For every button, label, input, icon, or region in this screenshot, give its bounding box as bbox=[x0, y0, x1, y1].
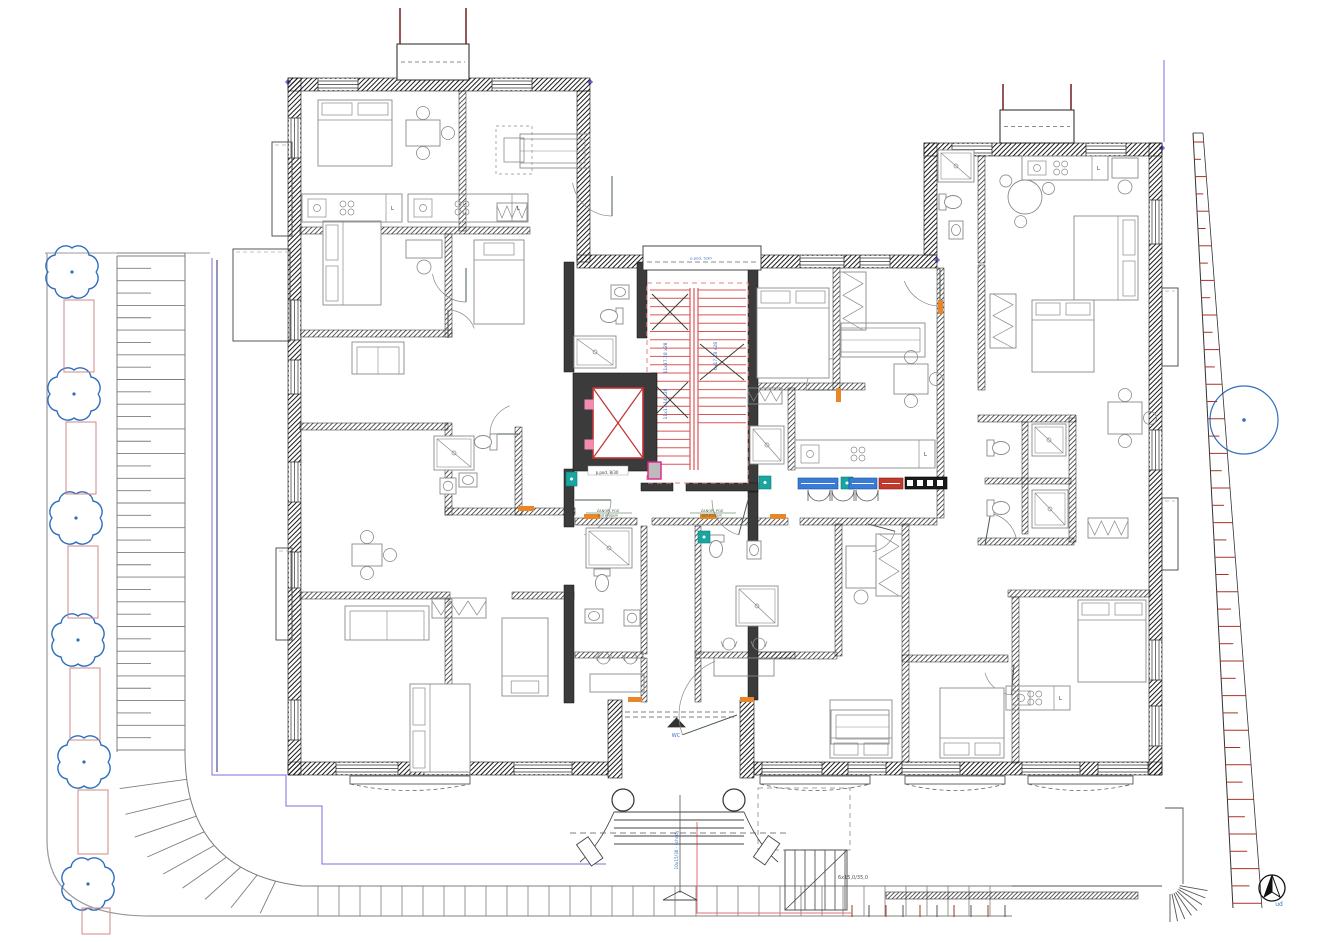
interior-wall bbox=[978, 265, 985, 390]
interior-wall bbox=[902, 655, 1008, 662]
desk bbox=[1112, 158, 1138, 194]
sofa bbox=[352, 342, 404, 374]
label-stair-run-1: 11x17.18 x28 bbox=[663, 342, 669, 373]
interior-wall bbox=[835, 524, 842, 656]
interior-wall bbox=[300, 423, 448, 430]
toilet bbox=[708, 535, 724, 558]
window bbox=[1086, 143, 1126, 156]
column bbox=[612, 789, 634, 811]
interior-wall bbox=[300, 592, 450, 599]
sofa bbox=[345, 606, 429, 640]
parking-strip-south bbox=[302, 886, 1012, 917]
window bbox=[1149, 200, 1162, 244]
wardrobe bbox=[876, 534, 902, 596]
planter bbox=[70, 668, 100, 740]
bed bbox=[323, 221, 381, 305]
dining-table bbox=[406, 107, 455, 160]
interior-wall bbox=[978, 415, 1076, 422]
appliance-tag-black bbox=[905, 477, 947, 489]
parking-curve bbox=[120, 752, 302, 913]
interior-wall bbox=[833, 268, 840, 390]
kitchen-counter: L bbox=[1022, 156, 1108, 180]
interior-wall bbox=[978, 538, 1074, 545]
threshold-marker bbox=[518, 506, 534, 511]
window bbox=[762, 762, 822, 775]
north-arrow bbox=[1259, 875, 1285, 901]
parking-strip-west bbox=[117, 253, 185, 752]
sink bbox=[949, 221, 963, 239]
stair-flight-right bbox=[698, 290, 746, 423]
tree bbox=[48, 368, 100, 420]
planter bbox=[66, 422, 96, 494]
shower bbox=[736, 586, 778, 626]
window bbox=[1149, 706, 1162, 746]
window bbox=[288, 118, 301, 158]
shower bbox=[1032, 490, 1068, 528]
window bbox=[318, 78, 358, 91]
exterior-wall bbox=[924, 143, 937, 255]
window bbox=[288, 700, 301, 740]
window bbox=[1022, 762, 1080, 775]
door-swing bbox=[868, 524, 895, 552]
threshold-marker bbox=[836, 388, 841, 402]
svg-text:L: L bbox=[391, 206, 394, 212]
shower bbox=[750, 426, 784, 464]
slope-hatch bbox=[1193, 133, 1262, 908]
core-wall bbox=[641, 483, 673, 491]
interior-wall bbox=[978, 155, 985, 263]
threshold-marker bbox=[770, 514, 786, 519]
window bbox=[288, 360, 301, 394]
interior-wall bbox=[788, 388, 795, 470]
kitchen-counter: L bbox=[408, 194, 528, 222]
french-window bbox=[1028, 776, 1133, 791]
desk bbox=[846, 546, 876, 604]
balcony bbox=[233, 249, 290, 341]
toilet bbox=[475, 434, 498, 450]
appliance-tag-red bbox=[879, 478, 903, 489]
label-landing-note: p.pod. 5/30 bbox=[690, 256, 712, 261]
tree-large bbox=[1210, 386, 1278, 454]
balcony bbox=[1162, 288, 1178, 366]
interior-wall bbox=[575, 518, 637, 525]
core-wall bbox=[564, 262, 574, 372]
interior-wall bbox=[300, 330, 452, 337]
core-wall bbox=[564, 585, 574, 703]
interior-wall bbox=[695, 526, 701, 654]
tree bbox=[50, 492, 102, 544]
desk bbox=[406, 240, 442, 274]
stair-core bbox=[573, 283, 748, 483]
toilet bbox=[594, 569, 610, 592]
threshold-marker bbox=[938, 300, 943, 314]
bed bbox=[830, 700, 892, 758]
tree bbox=[62, 858, 114, 910]
wardrobe bbox=[1088, 518, 1128, 538]
roof-landing bbox=[1000, 84, 1074, 143]
sink bbox=[585, 609, 603, 623]
appliance-tag bbox=[849, 478, 877, 489]
sofa bbox=[831, 710, 889, 744]
bed bbox=[502, 618, 548, 696]
interior-wall bbox=[985, 478, 1071, 484]
interior-wall bbox=[902, 524, 909, 764]
window bbox=[1149, 430, 1162, 470]
sink bbox=[611, 285, 629, 299]
bed bbox=[410, 684, 470, 772]
planter bbox=[64, 300, 94, 372]
balcony bbox=[1162, 498, 1178, 570]
label-note-left-1: ZANOŘ. POZ bbox=[597, 508, 620, 513]
label-entrance-wc: WC bbox=[672, 733, 681, 739]
interior-wall bbox=[1008, 590, 1150, 597]
label-stair-br: 6x15,0/35,0 bbox=[838, 875, 868, 881]
label-note-right-1: ZANOŘ. POZ bbox=[701, 508, 724, 513]
shower bbox=[434, 436, 474, 470]
window bbox=[514, 762, 572, 775]
window bbox=[800, 255, 844, 268]
bed bbox=[1074, 216, 1138, 300]
window bbox=[492, 78, 532, 91]
label-note-right-2: pod stropem bbox=[702, 514, 722, 518]
tree bbox=[46, 246, 98, 298]
closet-door bbox=[832, 490, 854, 501]
planter bbox=[68, 546, 98, 618]
column bbox=[723, 789, 745, 811]
wardrobe bbox=[840, 272, 866, 330]
core-wall bbox=[686, 483, 758, 491]
sofa bbox=[841, 323, 925, 357]
tree bbox=[52, 614, 104, 666]
furniture-layer: LLLLL bbox=[302, 100, 1157, 772]
label-note-left-2: pod stropem bbox=[598, 514, 618, 518]
interior-wall bbox=[652, 518, 788, 525]
round-table bbox=[1000, 175, 1055, 228]
label-stair-run-3: 11x17.14 x28 bbox=[663, 388, 669, 419]
interior-wall bbox=[641, 526, 647, 654]
closet-door bbox=[808, 490, 830, 501]
floor-plan-svg: LLLLL11x17.18 x286x17.18 x2811x17.14 x28… bbox=[0, 0, 1338, 942]
french-window bbox=[350, 776, 470, 791]
dining-table bbox=[894, 351, 943, 408]
exterior-wall bbox=[288, 78, 301, 775]
shower bbox=[1032, 424, 1066, 456]
bed bbox=[1032, 300, 1094, 372]
vestibule-door bbox=[679, 661, 737, 735]
threshold-marker bbox=[740, 697, 754, 702]
door-swing bbox=[904, 268, 940, 306]
wardrobe bbox=[432, 598, 486, 618]
svg-text:L: L bbox=[517, 206, 520, 212]
toilet bbox=[987, 500, 1010, 516]
room-tag bbox=[566, 472, 577, 486]
interior-wall bbox=[695, 658, 701, 702]
french-window bbox=[905, 776, 1005, 791]
shower bbox=[586, 528, 632, 568]
window bbox=[1098, 762, 1148, 775]
label-stair-run-2: 6x17.18 x28 bbox=[713, 342, 719, 370]
room-tag bbox=[698, 531, 710, 543]
washer bbox=[624, 610, 640, 626]
exterior-wall bbox=[608, 700, 622, 778]
kitchen-counter: L bbox=[302, 194, 402, 222]
appliance-tag bbox=[798, 478, 838, 489]
site-corner-right bbox=[1012, 808, 1207, 922]
closet-door bbox=[856, 490, 878, 501]
washer bbox=[440, 478, 456, 494]
bed bbox=[940, 688, 1004, 758]
label-elevator-note: p.pod. 8/30 bbox=[596, 470, 619, 475]
kitchen-counter: L bbox=[795, 440, 935, 468]
walkway-strip bbox=[886, 892, 1138, 899]
bed bbox=[474, 240, 524, 324]
sink bbox=[459, 473, 477, 487]
toilet bbox=[601, 308, 624, 324]
svg-text:L: L bbox=[1097, 166, 1100, 172]
window bbox=[902, 762, 960, 775]
label-north-arrow-label: ud bbox=[1275, 901, 1283, 908]
site-layer bbox=[45, 60, 1278, 934]
shower bbox=[938, 150, 974, 182]
exterior-wall bbox=[740, 700, 754, 778]
elevator bbox=[573, 373, 661, 479]
entrance-marker bbox=[668, 718, 685, 727]
threshold-marker bbox=[628, 697, 642, 702]
tree bbox=[58, 736, 110, 788]
svg-text:L: L bbox=[924, 452, 927, 458]
toilet bbox=[939, 194, 962, 210]
bed bbox=[1078, 600, 1146, 682]
wardrobe bbox=[990, 294, 1016, 348]
roof-landing bbox=[397, 8, 469, 80]
window bbox=[860, 255, 890, 268]
label-exterior-stair: 10x15/30 - schody bbox=[674, 830, 679, 869]
sink bbox=[747, 541, 761, 559]
entrance bbox=[570, 661, 847, 910]
interior-wall bbox=[445, 508, 575, 515]
exterior-wall bbox=[577, 91, 590, 262]
bed bbox=[757, 288, 829, 378]
room-tag bbox=[759, 476, 771, 489]
core-wall bbox=[637, 262, 647, 338]
interior-wall bbox=[515, 427, 522, 515]
planter bbox=[78, 790, 108, 854]
interior-wall bbox=[755, 383, 865, 390]
bed bbox=[318, 100, 392, 166]
toilet bbox=[987, 440, 1010, 456]
window bbox=[1149, 640, 1162, 680]
floor-plan-canvas: LLLLL11x17.18 x286x17.18 x2811x17.14 x28… bbox=[0, 0, 1338, 942]
shower bbox=[574, 336, 616, 368]
window bbox=[848, 762, 886, 775]
dining-table bbox=[352, 531, 397, 580]
window bbox=[336, 762, 398, 775]
window bbox=[288, 462, 301, 502]
sofa bbox=[520, 134, 590, 168]
svg-text:L: L bbox=[1059, 696, 1062, 702]
window bbox=[288, 552, 301, 588]
rug bbox=[496, 126, 532, 174]
